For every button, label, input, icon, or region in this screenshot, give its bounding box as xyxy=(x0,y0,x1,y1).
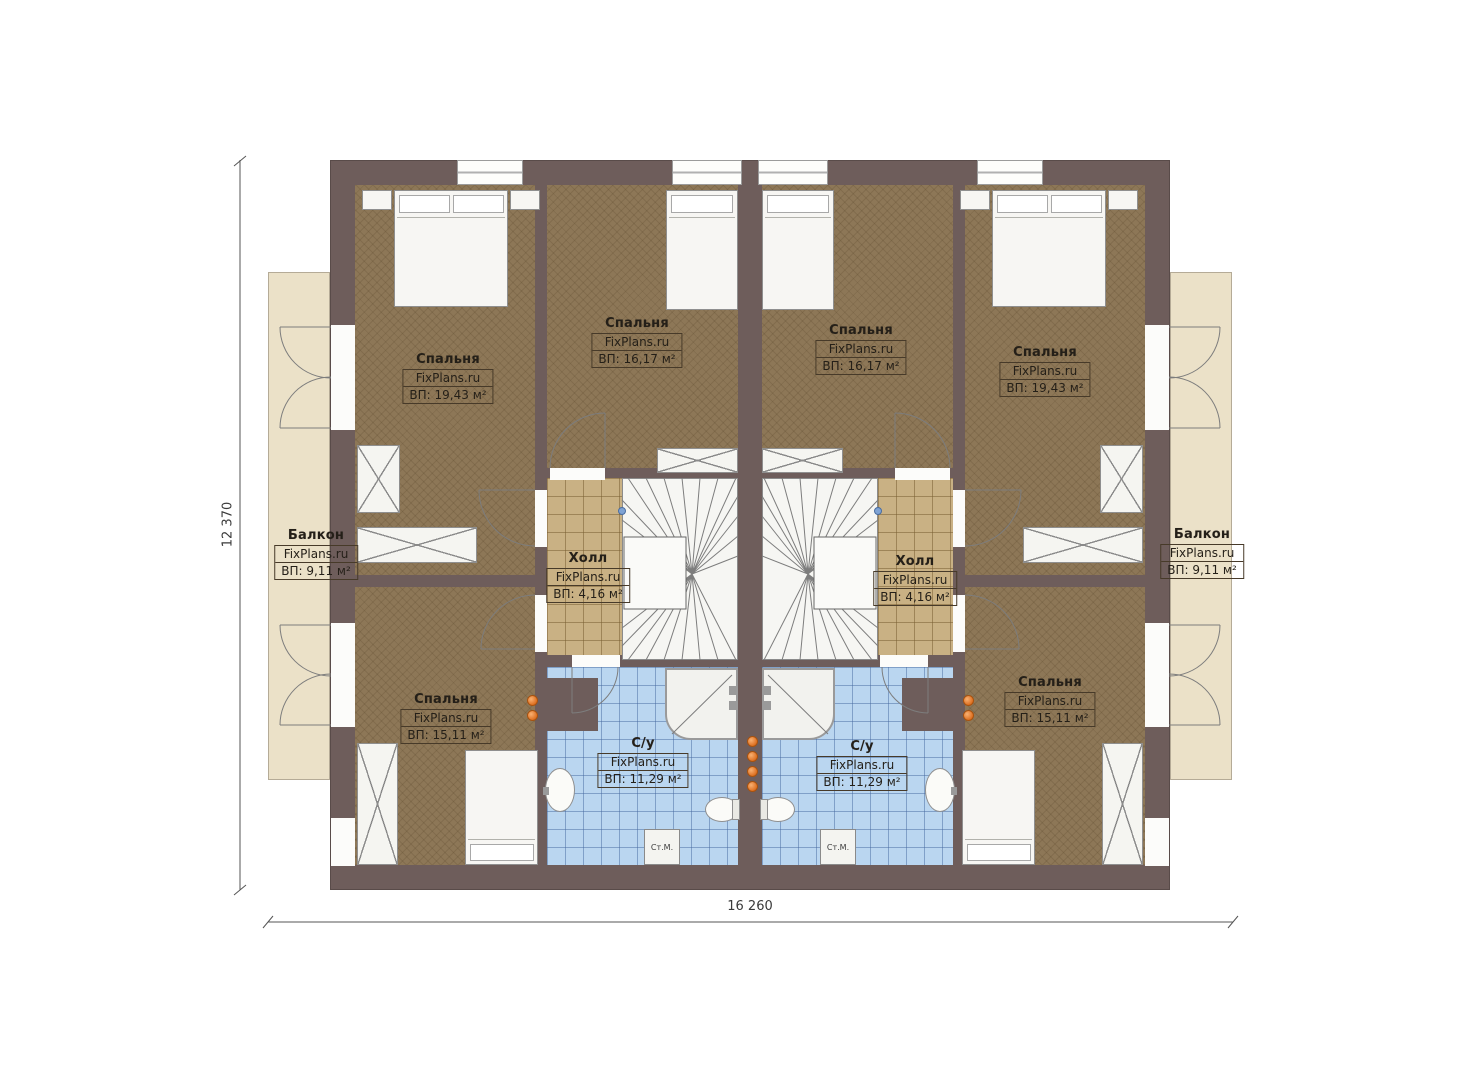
room-label-bathroom-left: С/у FixPlans.ru ВП: 11,29 м² xyxy=(597,736,688,788)
door-opening xyxy=(953,490,965,547)
door-opening xyxy=(535,595,547,652)
shower-tray-right xyxy=(762,668,835,740)
watermark: FixPlans.ru xyxy=(874,572,956,588)
room-area: ВП: 19,43 м² xyxy=(403,386,492,403)
room-label-bedroom-bottom-right: Спальня FixPlans.ru ВП: 15,11 м² xyxy=(1004,675,1095,727)
room-label-hall-left: Холл FixPlans.ru ВП: 4,16 м² xyxy=(546,551,630,603)
window xyxy=(457,160,523,185)
single-bed-bottom-right xyxy=(962,750,1035,865)
room-name: С/у xyxy=(816,739,907,754)
toilet-tank xyxy=(760,799,768,820)
nightstand xyxy=(1108,190,1138,210)
riser-dot xyxy=(963,695,974,706)
room-name: Холл xyxy=(873,554,957,569)
riser-dot xyxy=(747,736,758,747)
riser-dot xyxy=(747,751,758,762)
closet-shaft-crossed xyxy=(762,448,843,473)
vent-block-left xyxy=(537,678,598,731)
sink-left xyxy=(545,768,575,812)
window xyxy=(977,160,1043,185)
riser-dot xyxy=(963,710,974,721)
riser-dot xyxy=(747,781,758,792)
wardrobe-crossed xyxy=(1100,445,1143,513)
room-name: Холл xyxy=(546,551,630,566)
room-area: ВП: 15,11 м² xyxy=(401,726,490,743)
watermark: FixPlans.ru xyxy=(816,341,905,357)
door-opening xyxy=(535,490,547,547)
shower-valve xyxy=(764,686,771,695)
nightstand xyxy=(960,190,990,210)
room-name: Балкон xyxy=(274,528,358,543)
plumbing-dot xyxy=(618,507,626,515)
room-area: ВП: 15,11 м² xyxy=(1005,709,1094,726)
washing-machine-right: Ст.М. xyxy=(820,829,856,865)
watermark: FixPlans.ru xyxy=(598,754,687,770)
balcony-door-opening xyxy=(1145,623,1169,727)
watermark: FixPlans.ru xyxy=(547,569,629,585)
single-bed-mid-left xyxy=(666,190,738,310)
room-label-bedroom-top-right: Спальня FixPlans.ru ВП: 19,43 м² xyxy=(999,345,1090,397)
plumbing-dot xyxy=(874,507,882,515)
door-opening xyxy=(572,655,620,667)
room-area: ВП: 11,29 м² xyxy=(817,773,906,790)
dimension-width: 16 260 xyxy=(690,899,810,914)
room-label-bedroom-top-left: Спальня FixPlans.ru ВП: 19,43 м² xyxy=(402,352,493,404)
riser-dot xyxy=(747,766,758,777)
room-label-bedroom-mid-right: Спальня FixPlans.ru ВП: 16,17 м² xyxy=(815,323,906,375)
room-area: ВП: 4,16 м² xyxy=(874,588,956,605)
nightstand xyxy=(510,190,540,210)
room-name: Спальня xyxy=(591,316,682,331)
room-label-bedroom-mid-left: Спальня FixPlans.ru ВП: 16,17 м² xyxy=(591,316,682,368)
floor-plan: Ст.М. Ст.М. xyxy=(0,0,1474,1080)
room-name: Спальня xyxy=(999,345,1090,360)
watermark: FixPlans.ru xyxy=(817,757,906,773)
single-bed-mid-right xyxy=(762,190,834,310)
room-name: Спальня xyxy=(400,692,491,707)
room-area: ВП: 16,17 м² xyxy=(816,357,905,374)
watermark: FixPlans.ru xyxy=(1005,693,1094,709)
shower-valve xyxy=(764,701,771,710)
balcony-right-deck xyxy=(1170,272,1232,780)
room-label-bathroom-right: С/у FixPlans.ru ВП: 11,29 м² xyxy=(816,739,907,791)
room-name: Спальня xyxy=(815,323,906,338)
watermark: FixPlans.ru xyxy=(592,334,681,350)
room-label-balcony-left: Балкон FixPlans.ru ВП: 9,11 м² xyxy=(274,528,358,580)
window xyxy=(1145,818,1169,866)
watermark: FixPlans.ru xyxy=(275,546,357,562)
double-bed-top-left xyxy=(394,190,508,307)
door-opening xyxy=(880,655,928,667)
wardrobe-crossed xyxy=(357,743,398,865)
window xyxy=(331,818,355,866)
wardrobe-crossed xyxy=(1023,527,1143,563)
riser-dot xyxy=(527,710,538,721)
room-area: ВП: 9,11 м² xyxy=(275,562,357,579)
door-opening xyxy=(550,468,605,480)
watermark: FixPlans.ru xyxy=(1000,363,1089,379)
room-name: С/у xyxy=(597,736,688,751)
dimension-height: 12 370 xyxy=(221,495,236,555)
balcony-door-opening xyxy=(331,325,355,430)
room-name: Балкон xyxy=(1160,527,1244,542)
wardrobe-crossed xyxy=(357,445,400,513)
balcony-door-opening xyxy=(1145,325,1169,430)
door-opening xyxy=(895,468,950,480)
room-area: ВП: 16,17 м² xyxy=(592,350,681,367)
nightstand xyxy=(362,190,392,210)
staircase-right xyxy=(762,478,878,660)
window xyxy=(672,160,742,185)
room-name: Спальня xyxy=(1004,675,1095,690)
room-label-balcony-right: Балкон FixPlans.ru ВП: 9,11 м² xyxy=(1160,527,1244,579)
shower-valve xyxy=(729,686,736,695)
watermark: FixPlans.ru xyxy=(401,710,490,726)
room-area: ВП: 4,16 м² xyxy=(547,585,629,602)
sink-tap xyxy=(543,787,549,795)
riser-dot xyxy=(527,695,538,706)
room-area: ВП: 9,11 м² xyxy=(1161,561,1243,578)
window xyxy=(758,160,828,185)
single-bed-bottom-left xyxy=(465,750,538,865)
wardrobe-crossed xyxy=(357,527,477,563)
balcony-left-deck xyxy=(268,272,330,780)
shower-valve xyxy=(729,701,736,710)
room-name: Спальня xyxy=(402,352,493,367)
washing-machine-left: Ст.М. xyxy=(644,829,680,865)
washer-label: Ст.М. xyxy=(651,843,673,852)
vent-block-right xyxy=(902,678,963,731)
sink-tap xyxy=(951,787,957,795)
room-label-hall-right: Холл FixPlans.ru ВП: 4,16 м² xyxy=(873,554,957,606)
closet-shaft-crossed xyxy=(657,448,738,473)
shower-tray-left xyxy=(665,668,738,740)
toilet-tank xyxy=(732,799,740,820)
watermark: FixPlans.ru xyxy=(403,370,492,386)
double-bed-top-right xyxy=(992,190,1106,307)
room-label-bedroom-bottom-left: Спальня FixPlans.ru ВП: 15,11 м² xyxy=(400,692,491,744)
staircase-left xyxy=(622,478,738,660)
wardrobe-crossed xyxy=(1102,743,1143,865)
room-area: ВП: 19,43 м² xyxy=(1000,379,1089,396)
room-area: ВП: 11,29 м² xyxy=(598,770,687,787)
washer-label: Ст.М. xyxy=(827,843,849,852)
balcony-door-opening xyxy=(331,623,355,727)
watermark: FixPlans.ru xyxy=(1161,545,1243,561)
